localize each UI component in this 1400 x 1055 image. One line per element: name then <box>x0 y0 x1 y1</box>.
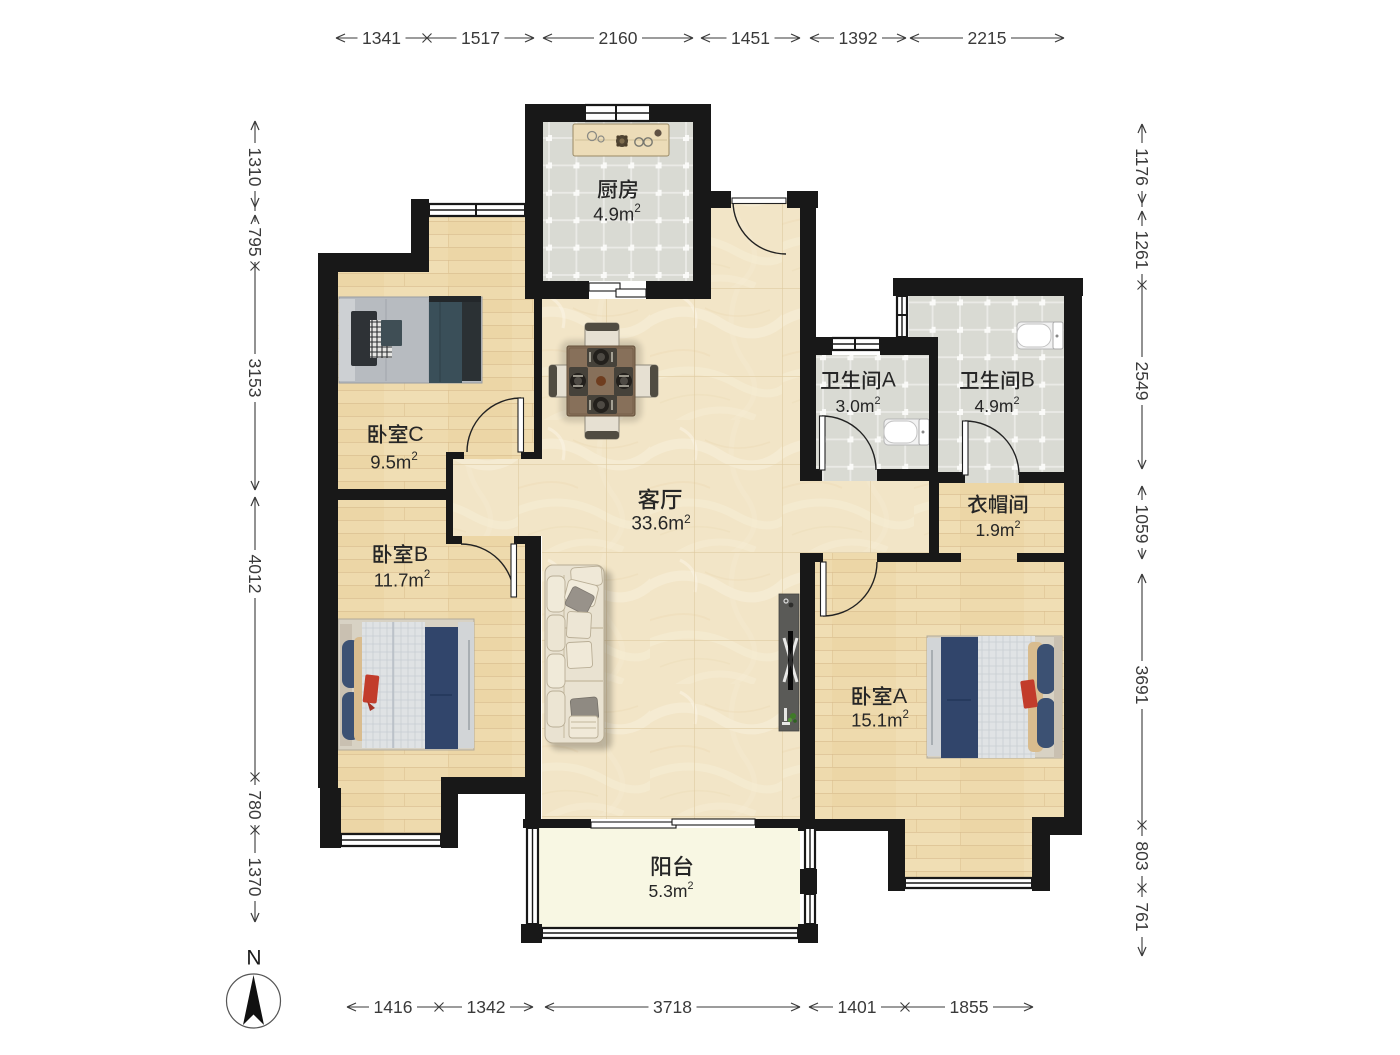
svg-text:1059: 1059 <box>1132 505 1152 544</box>
svg-text:15.1m2: 15.1m2 <box>851 709 909 731</box>
svg-text:3718: 3718 <box>653 997 692 1017</box>
svg-text:C: C <box>408 422 423 446</box>
svg-text:803: 803 <box>1132 841 1152 870</box>
svg-text:9.5m2: 9.5m2 <box>370 451 418 473</box>
svg-text:33.6m2: 33.6m2 <box>631 512 690 535</box>
svg-text:1.9m2: 1.9m2 <box>976 519 1021 540</box>
svg-text:N: N <box>246 947 261 970</box>
svg-text:2549: 2549 <box>1132 362 1152 401</box>
svg-text:1370: 1370 <box>245 858 265 897</box>
svg-text:1341: 1341 <box>362 28 401 48</box>
svg-text:3.0m2: 3.0m2 <box>836 395 881 416</box>
svg-text:1451: 1451 <box>731 28 770 48</box>
svg-text:B: B <box>1021 369 1035 392</box>
svg-text:1261: 1261 <box>1132 231 1152 270</box>
svg-text:2160: 2160 <box>599 28 638 48</box>
svg-text:5.3m2: 5.3m2 <box>649 880 694 901</box>
svg-text:4.9m2: 4.9m2 <box>975 395 1020 416</box>
svg-text:1416: 1416 <box>374 997 413 1017</box>
svg-text:1176: 1176 <box>1132 148 1152 186</box>
svg-text:761: 761 <box>1132 902 1152 931</box>
svg-text:A: A <box>882 369 896 392</box>
svg-text:3153: 3153 <box>245 359 265 398</box>
svg-text:1517: 1517 <box>461 28 500 48</box>
svg-text:1401: 1401 <box>838 997 877 1017</box>
svg-text:1310: 1310 <box>245 148 265 187</box>
svg-text:A: A <box>893 684 908 708</box>
svg-text:3691: 3691 <box>1132 666 1152 705</box>
svg-text:B: B <box>414 542 428 566</box>
svg-text:11.7m2: 11.7m2 <box>374 569 430 591</box>
svg-text:4.9m2: 4.9m2 <box>593 203 641 225</box>
svg-text:1392: 1392 <box>839 28 878 48</box>
svg-text:1342: 1342 <box>467 997 506 1017</box>
svg-text:1855: 1855 <box>950 997 989 1017</box>
svg-text:4012: 4012 <box>245 555 265 594</box>
svg-text:780: 780 <box>245 790 265 819</box>
svg-text:795: 795 <box>245 227 265 256</box>
svg-text:2215: 2215 <box>968 28 1007 48</box>
